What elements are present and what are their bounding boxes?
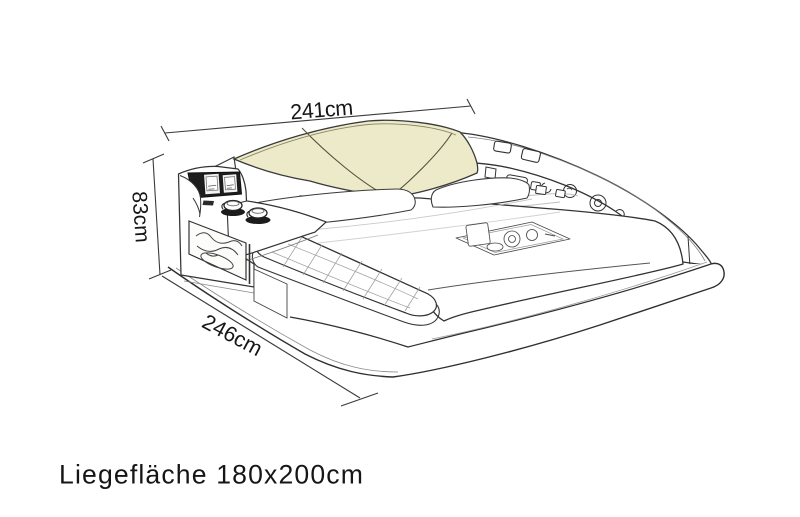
- svg-text:241cm: 241cm: [289, 96, 353, 125]
- svg-text:83cm: 83cm: [127, 191, 154, 244]
- svg-text:Liegefläche 180x200cm: Liegefläche 180x200cm: [59, 460, 364, 490]
